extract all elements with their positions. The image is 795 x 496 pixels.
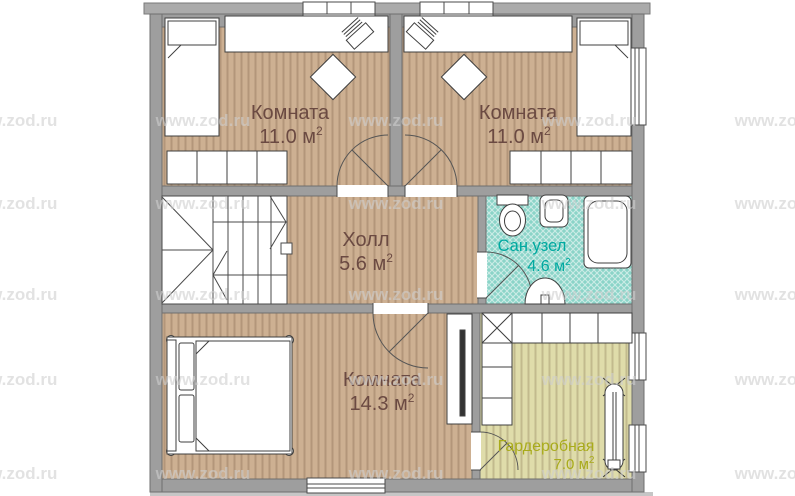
watermark: www.zod.ru — [348, 464, 444, 483]
watermark: www.zod.ru — [541, 111, 637, 130]
room-label: Холл — [342, 229, 389, 251]
watermark: www.zod.ru — [155, 111, 251, 130]
dresser — [510, 151, 632, 184]
floor-plan-canvas: Комната 11.0 м2 Комната 11.0 м2 Холл 5.6… — [0, 0, 795, 496]
toilet — [497, 195, 528, 236]
wall-left — [150, 14, 162, 492]
watermark: www.zod.ru — [348, 194, 444, 213]
watermark: www.zod.ru — [541, 285, 637, 304]
door-opening — [471, 432, 481, 470]
cabinet-row-top — [512, 313, 632, 343]
door-opening — [373, 303, 428, 314]
cabinet-column-left — [482, 343, 512, 425]
watermark: www.zod.ru — [155, 464, 251, 483]
watermark: www.zod.ru — [734, 111, 795, 130]
watermark: www.zod.ru — [734, 194, 795, 213]
watermark: www.zod.ru — [0, 370, 57, 389]
watermark: www.zod.ru — [734, 464, 795, 483]
ironing-board — [603, 378, 625, 477]
wall-partition-top-rooms — [390, 14, 402, 196]
watermark: www.zod.ru — [0, 111, 57, 130]
watermark: www.zod.ru — [348, 370, 444, 389]
bottom-shadow-band — [150, 492, 653, 496]
watermark: www.zod.ru — [541, 194, 637, 213]
cabinet-crossed — [482, 313, 512, 343]
watermark: www.zod.ru — [734, 370, 795, 389]
watermark: www.zod.ru — [0, 194, 57, 213]
watermark: www.zod.ru — [734, 285, 795, 304]
watermark: www.zod.ru — [348, 285, 444, 304]
tv-stand — [447, 314, 472, 424]
room-area: 4.6 м2 — [527, 257, 571, 275]
room-label: Комната — [251, 102, 330, 124]
watermark: www.zod.ru — [541, 370, 637, 389]
room-label: Сан.узел — [498, 237, 567, 255]
door-opening — [477, 252, 487, 298]
tv-icon — [460, 330, 465, 416]
watermark: www.zod.ru — [541, 464, 637, 483]
desk — [404, 16, 572, 52]
watermark: www.zod.ru — [155, 285, 251, 304]
floor-plan: Комната 11.0 м2 Комната 11.0 м2 Холл 5.6… — [0, 0, 795, 496]
room-area: 5.6 м2 — [339, 251, 393, 275]
watermark: www.zod.ru — [348, 111, 444, 130]
watermark: www.zod.ru — [155, 194, 251, 213]
dresser — [167, 151, 287, 184]
room-area: 14.3 м2 — [350, 391, 415, 415]
double-bed — [167, 336, 294, 456]
watermark: www.zod.ru — [0, 285, 57, 304]
roof-eave-band — [144, 3, 650, 14]
watermark: www.zod.ru — [0, 464, 57, 483]
stair-post — [281, 243, 292, 254]
room-area: 11.0 м2 — [259, 124, 323, 148]
room-label: Гардеробная — [498, 438, 595, 455]
watermark: www.zod.ru — [155, 370, 251, 389]
